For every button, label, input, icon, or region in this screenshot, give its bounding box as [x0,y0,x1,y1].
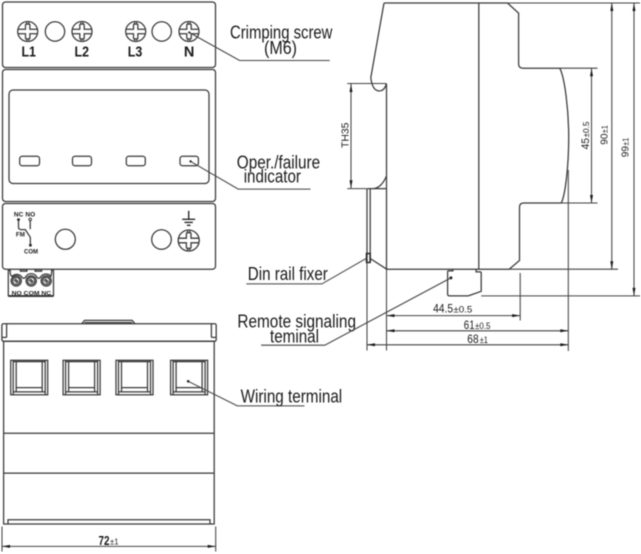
svg-text:L2: L2 [75,44,90,60]
svg-text:N: N [184,44,195,60]
svg-text:99: 99 [620,146,632,157]
svg-text:NO COM NC: NO COM NC [12,291,52,297]
svg-text:90: 90 [599,133,611,144]
svg-text:±0.5: ±0.5 [581,121,591,137]
svg-text:±1: ±1 [601,125,610,133]
svg-text:Wiring terminal: Wiring terminal [241,387,343,407]
svg-text:61: 61 [464,320,475,332]
svg-text:L3: L3 [128,44,143,60]
svg-text:±0.5: ±0.5 [475,321,491,331]
svg-text:45: 45 [580,138,592,150]
svg-text:NC: NC [14,212,23,219]
svg-text:±1: ±1 [480,335,488,345]
svg-text:TH35: TH35 [340,122,352,148]
svg-text:72: 72 [99,533,110,548]
svg-text:teminal: teminal [270,326,319,346]
svg-text:L1: L1 [21,44,36,60]
svg-text:±1: ±1 [622,137,631,145]
svg-text:68: 68 [467,334,478,346]
svg-text:±1: ±1 [110,537,119,547]
svg-text:±0.5: ±0.5 [453,305,472,315]
svg-text:FM: FM [16,232,25,239]
svg-text:Din rail fixer: Din rail fixer [248,264,328,284]
svg-text:COM: COM [24,249,38,256]
svg-text:(M6): (M6) [264,38,297,58]
svg-text:indicator: indicator [244,166,301,186]
svg-text:44.5: 44.5 [433,304,453,316]
